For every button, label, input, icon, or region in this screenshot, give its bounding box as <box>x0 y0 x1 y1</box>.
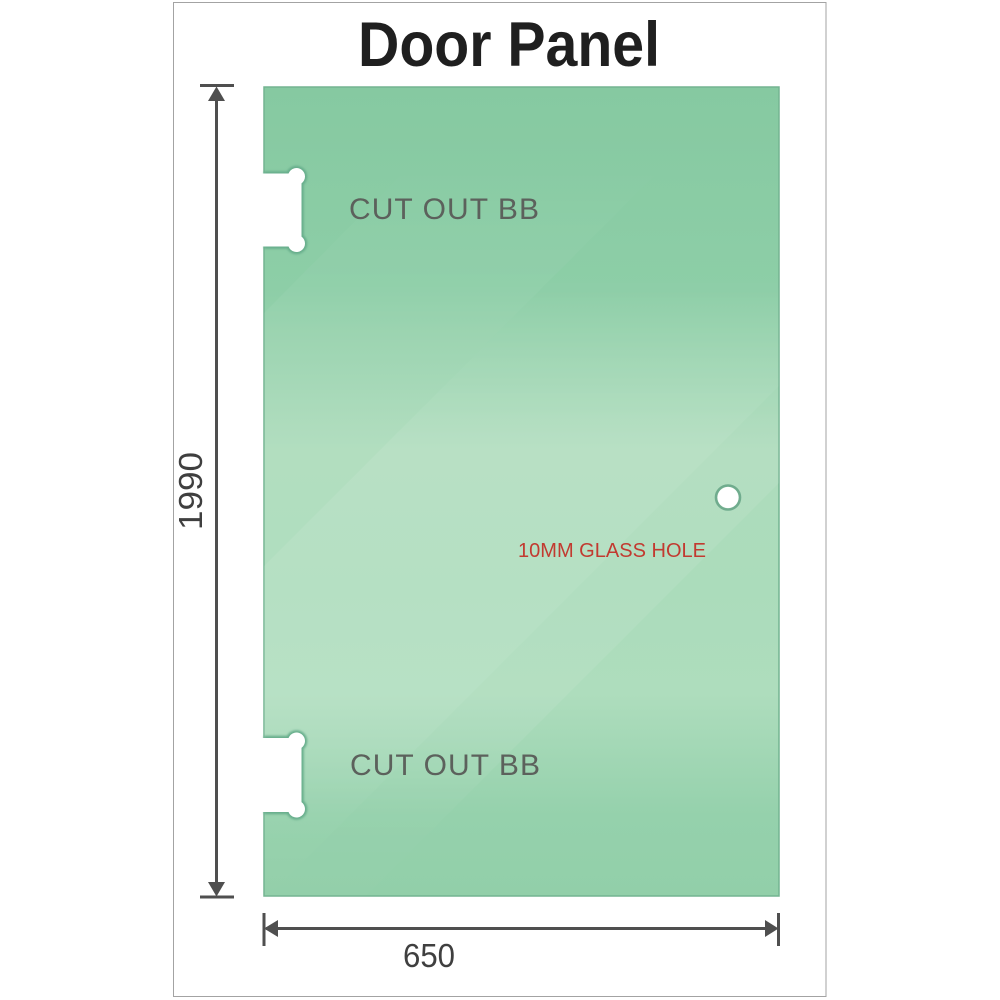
svg-text:CUT OUT BB: CUT OUT BB <box>350 749 540 782</box>
svg-text:1990: 1990 <box>172 452 209 530</box>
svg-text:10MM GLASS HOLE: 10MM GLASS HOLE <box>518 540 706 562</box>
svg-text:CUT OUT BB: CUT OUT BB <box>349 193 539 226</box>
svg-text:650: 650 <box>403 937 455 974</box>
svg-text:Door Panel: Door Panel <box>358 10 660 80</box>
